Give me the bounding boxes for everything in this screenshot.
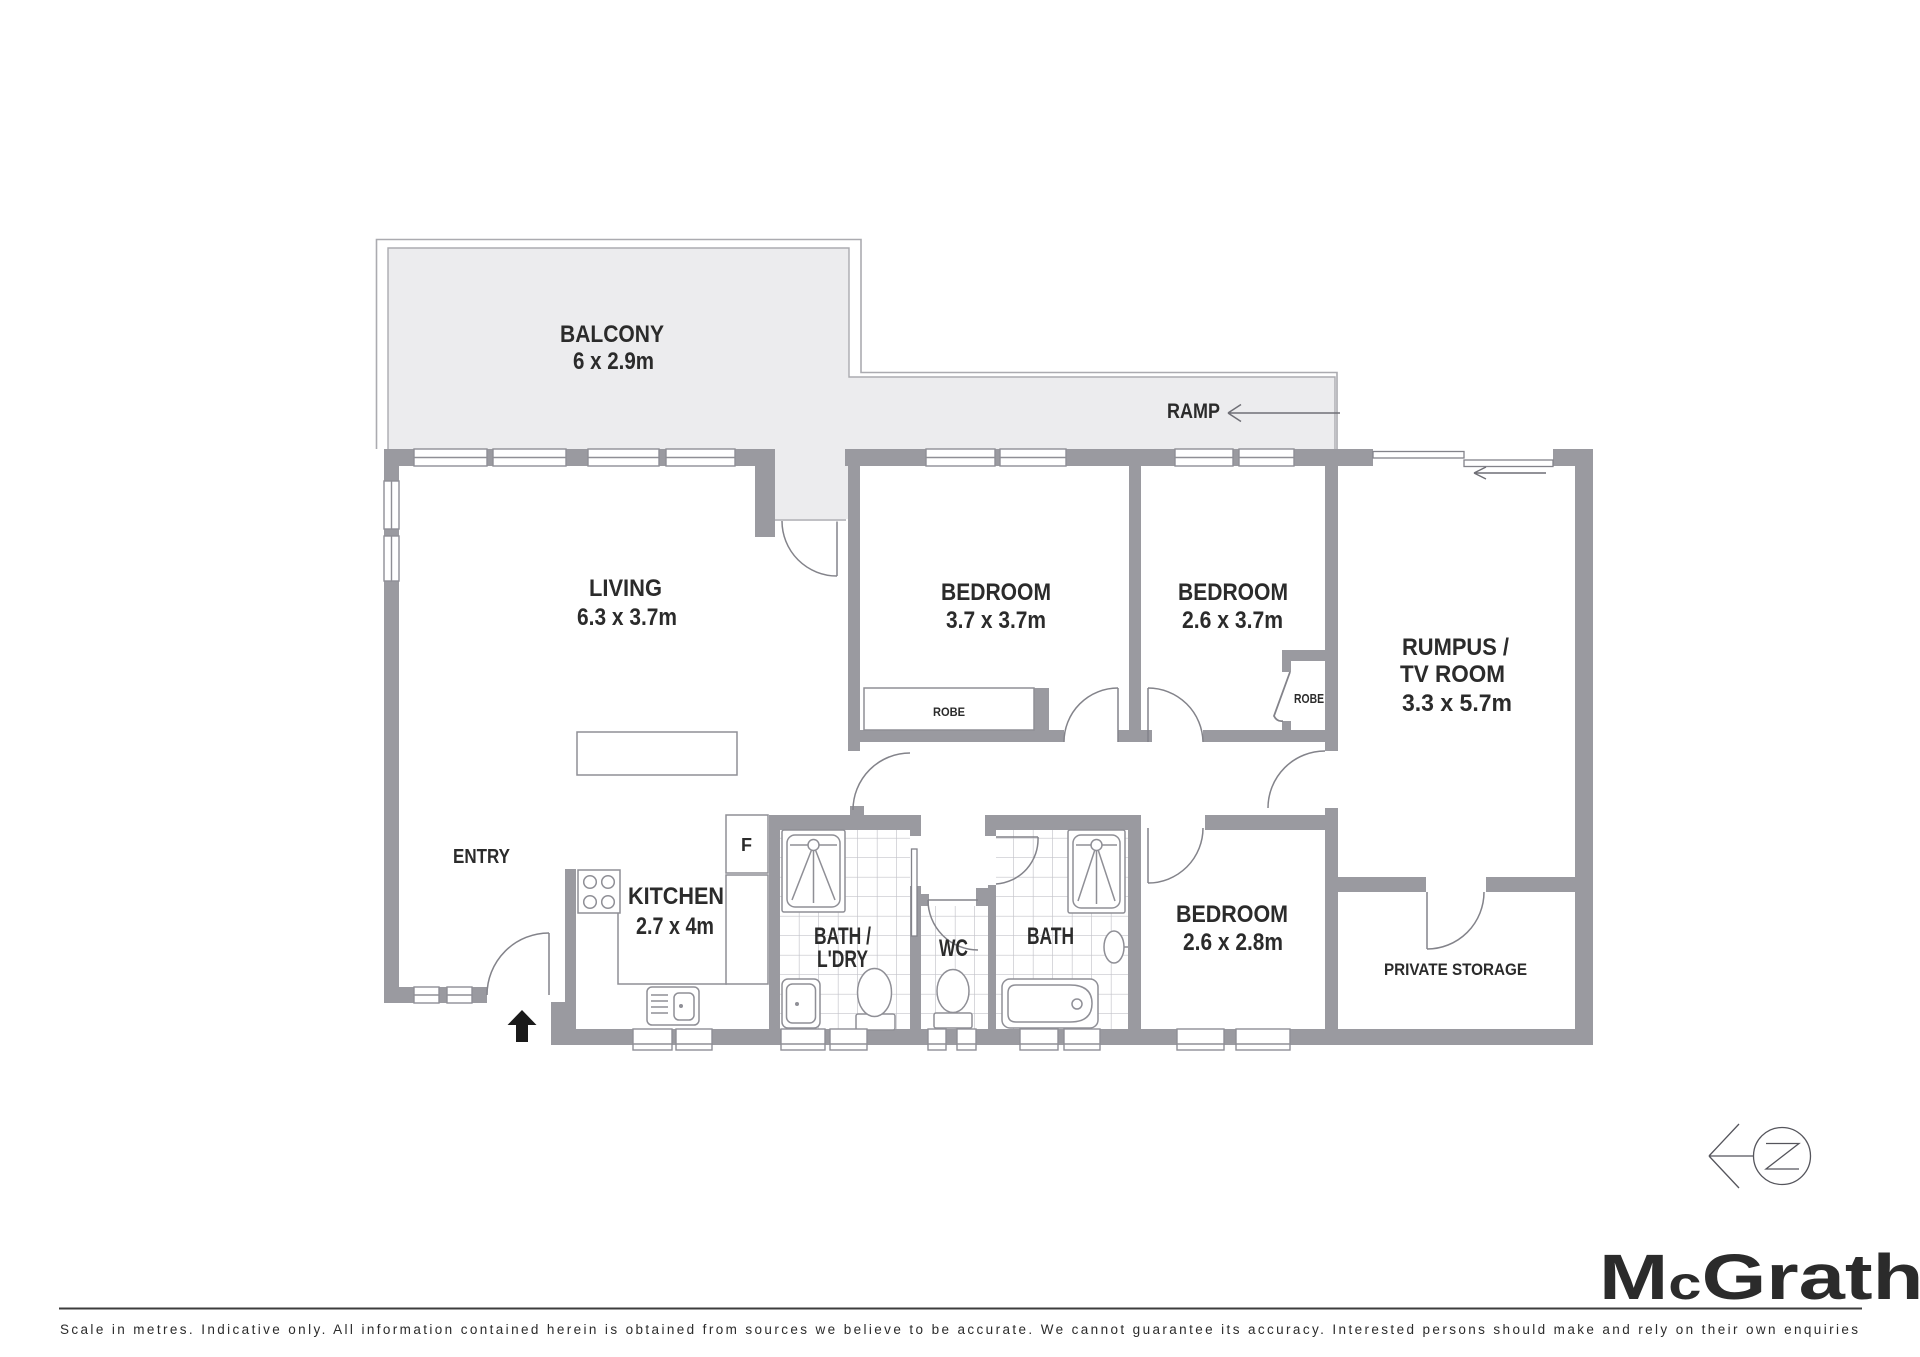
svg-text:PRIVATE STORAGE: PRIVATE STORAGE bbox=[1384, 960, 1527, 979]
svg-text:BATH: BATH bbox=[1027, 923, 1074, 950]
svg-text:BEDROOM: BEDROOM bbox=[941, 579, 1051, 606]
svg-text:WC: WC bbox=[939, 935, 968, 962]
svg-text:ROBE: ROBE bbox=[933, 705, 965, 719]
svg-text:2.7 x 4m: 2.7 x 4m bbox=[636, 913, 714, 940]
svg-text:BEDROOM: BEDROOM bbox=[1178, 579, 1288, 606]
svg-text:L'DRY: L'DRY bbox=[817, 946, 868, 973]
svg-text:3.3 x 5.7m: 3.3 x 5.7m bbox=[1402, 690, 1512, 717]
svg-text:2.6 x 3.7m: 2.6 x 3.7m bbox=[1182, 607, 1283, 634]
svg-text:6 x 2.9m: 6 x 2.9m bbox=[573, 348, 654, 375]
svg-text:RAMP: RAMP bbox=[1167, 400, 1220, 423]
svg-text:Scale in metres. Indicative on: Scale in metres. Indicative only. All in… bbox=[60, 1322, 1858, 1337]
svg-text:TV ROOM: TV ROOM bbox=[1400, 661, 1505, 688]
svg-text:ENTRY: ENTRY bbox=[453, 846, 511, 868]
svg-text:ROBE: ROBE bbox=[1294, 691, 1324, 706]
svg-text:BEDROOM: BEDROOM bbox=[1176, 901, 1288, 928]
svg-text:LIVING: LIVING bbox=[589, 575, 662, 602]
svg-text:RUMPUS /: RUMPUS / bbox=[1402, 634, 1509, 661]
svg-text:3.7 x 3.7m: 3.7 x 3.7m bbox=[946, 607, 1046, 634]
svg-text:2.6 x 2.8m: 2.6 x 2.8m bbox=[1183, 929, 1283, 956]
svg-text:KITCHEN: KITCHEN bbox=[628, 883, 724, 910]
svg-text:McGrath: McGrath bbox=[1599, 1241, 1920, 1313]
svg-text:6.3 x 3.7m: 6.3 x 3.7m bbox=[577, 604, 677, 631]
svg-text:BALCONY: BALCONY bbox=[560, 321, 664, 348]
svg-text:F: F bbox=[741, 835, 752, 855]
